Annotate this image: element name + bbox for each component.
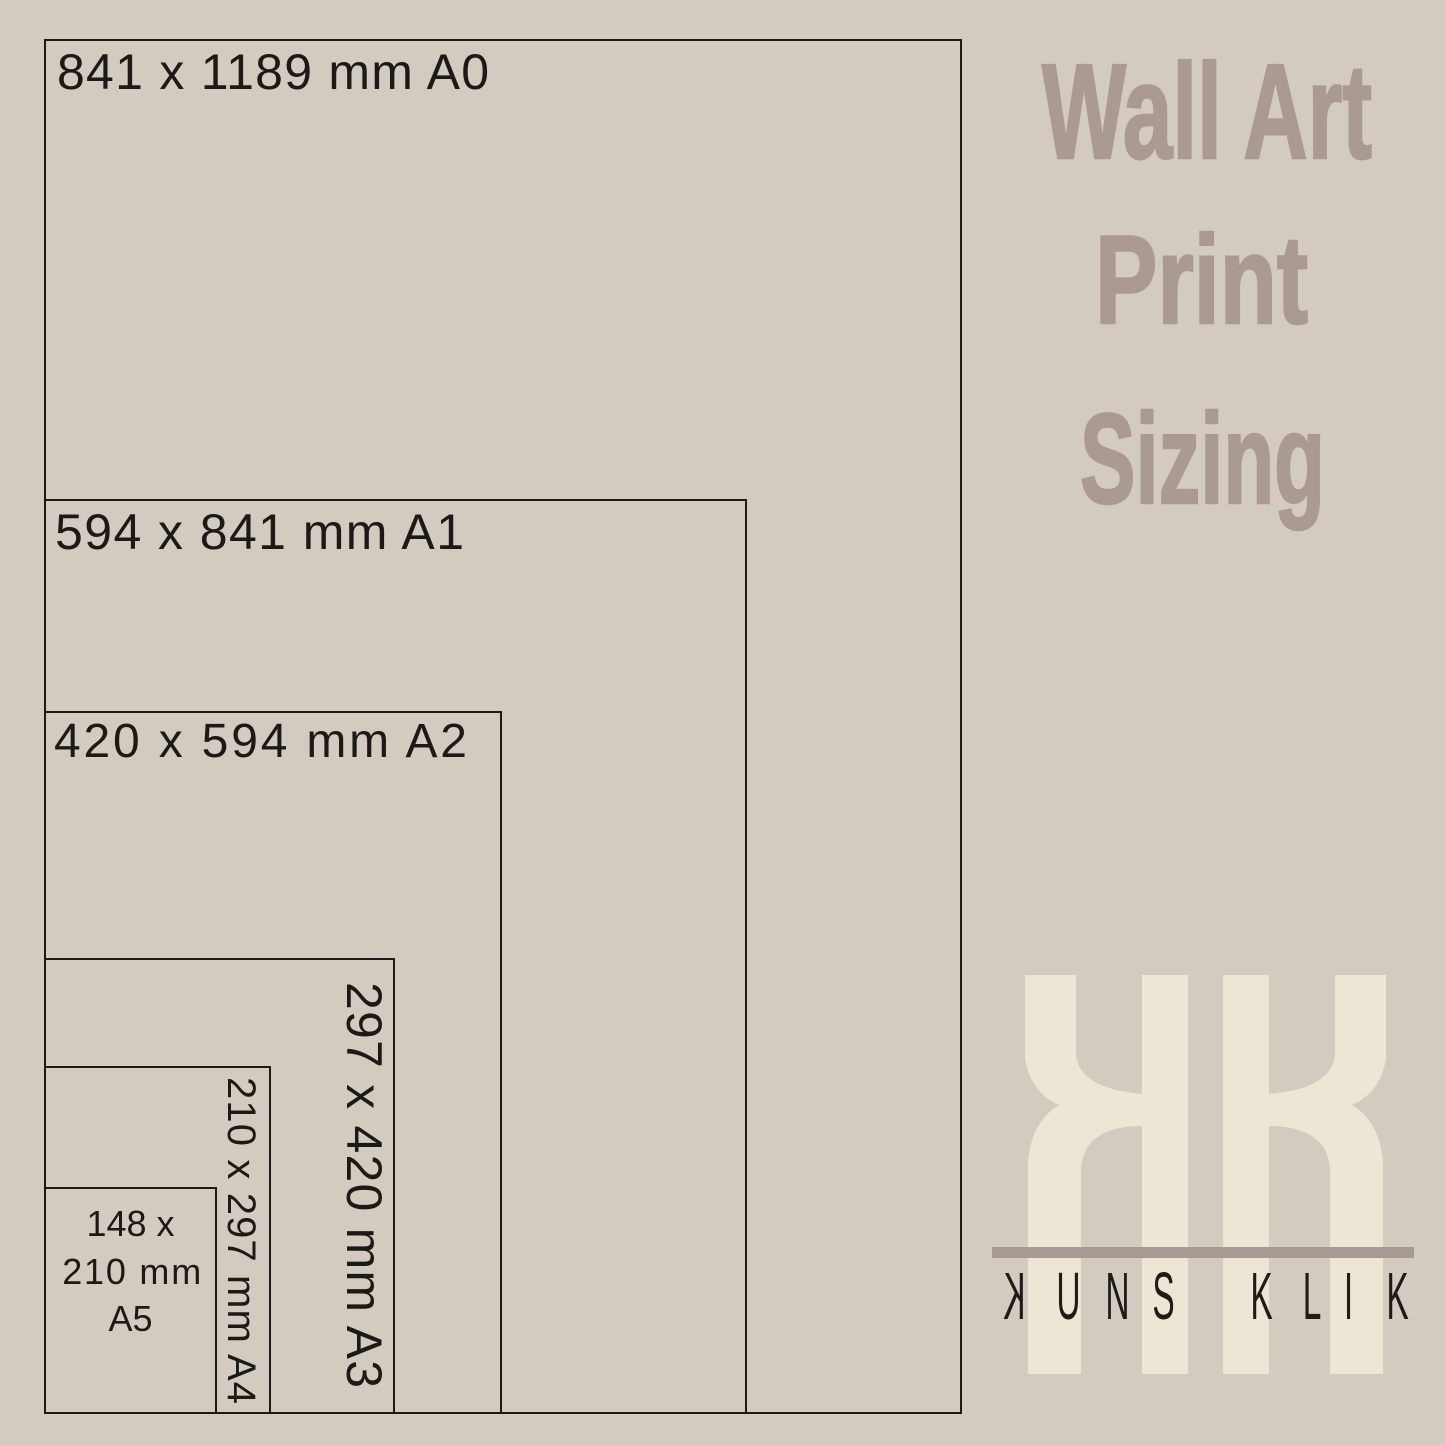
svg-text:Print: Print xyxy=(1095,211,1308,350)
svg-text:I: I xyxy=(1344,1260,1353,1335)
svg-text:148 x: 148 x xyxy=(86,1203,174,1244)
svg-text:S: S xyxy=(1152,1260,1174,1335)
svg-text:841 x 1189 mm A0: 841 x 1189 mm A0 xyxy=(57,44,489,100)
svg-text:U: U xyxy=(1056,1260,1080,1335)
svg-text:210 x 297 mm A4: 210 x 297 mm A4 xyxy=(219,1077,263,1404)
svg-text:K: K xyxy=(1003,1260,1025,1335)
svg-text:A5: A5 xyxy=(108,1298,152,1339)
svg-text:L: L xyxy=(1303,1260,1322,1335)
svg-text:Sizing: Sizing xyxy=(1080,388,1325,531)
svg-text:K: K xyxy=(1386,1260,1408,1335)
svg-text:297 x 420 mm A3: 297 x 420 mm A3 xyxy=(336,982,392,1388)
svg-text:N: N xyxy=(1105,1260,1129,1335)
svg-text:Wall Art: Wall Art xyxy=(1042,36,1372,187)
svg-text:K: K xyxy=(1250,1260,1272,1335)
svg-text:420 x 594 mm A2: 420 x 594 mm A2 xyxy=(54,715,467,768)
svg-text:210 mm: 210 mm xyxy=(62,1251,201,1292)
svg-text:594 x 841 mm A1: 594 x 841 mm A1 xyxy=(55,504,464,560)
